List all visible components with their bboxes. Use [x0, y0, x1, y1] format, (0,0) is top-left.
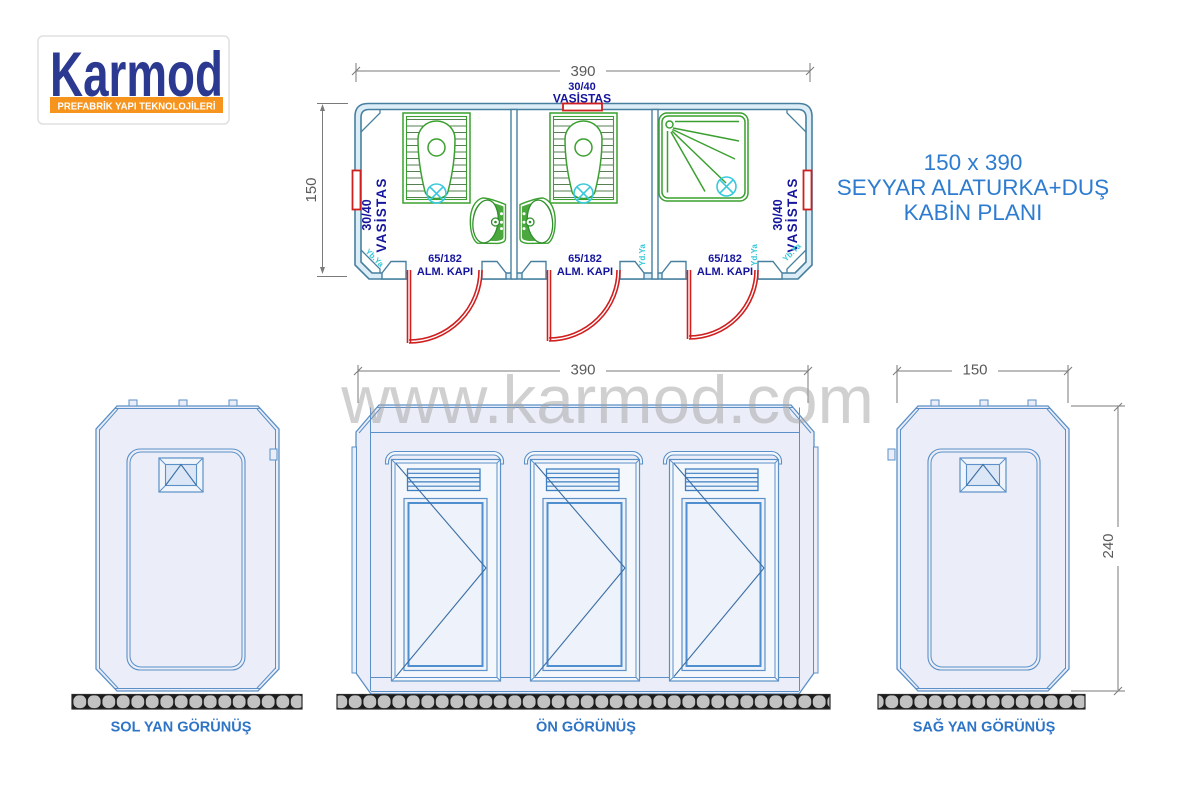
svg-text:VASİSTAS: VASİSTAS [785, 177, 800, 252]
svg-text:150: 150 [303, 177, 320, 202]
svg-text:30/40: 30/40 [771, 199, 785, 230]
svg-text:30/40: 30/40 [360, 199, 374, 230]
svg-text:390: 390 [570, 63, 595, 80]
svg-text:150: 150 [962, 362, 987, 379]
svg-text:ALM. KAPI: ALM. KAPI [417, 266, 473, 278]
svg-text:240: 240 [1100, 533, 1117, 558]
svg-text:150 x 390: 150 x 390 [924, 150, 1023, 175]
svg-text:ÖN GÖRÜNÜŞ: ÖN GÖRÜNÜŞ [536, 719, 636, 736]
svg-text:65/182: 65/182 [568, 253, 602, 265]
svg-text:www.karmod.com: www.karmod.com [340, 363, 874, 438]
svg-text:VASİSTAS: VASİSTAS [553, 91, 611, 106]
svg-text:SAĞ YAN GÖRÜNÜŞ: SAĞ YAN GÖRÜNÜŞ [913, 718, 1056, 736]
svg-text:KABİN PLANI: KABİN PLANI [904, 200, 1043, 225]
svg-text:VASİSTAS: VASİSTAS [374, 177, 389, 252]
svg-text:PREFABRİK YAPI TEKNOLOJİLERİ: PREFABRİK YAPI TEKNOLOJİLERİ [58, 100, 216, 113]
svg-text:65/182: 65/182 [428, 253, 462, 265]
svg-text:ALM. KAPI: ALM. KAPI [697, 266, 753, 278]
svg-text:SEYYAR ALATURKA+DUŞ: SEYYAR ALATURKA+DUŞ [837, 175, 1109, 200]
svg-text:Yd.Ya: Yd.Ya [638, 244, 647, 266]
svg-text:SOL YAN GÖRÜNÜŞ: SOL YAN GÖRÜNÜŞ [111, 719, 252, 736]
svg-text:Yd.Ya: Yd.Ya [750, 244, 759, 266]
svg-text:ALM. KAPI: ALM. KAPI [557, 266, 613, 278]
svg-text:65/182: 65/182 [708, 253, 742, 265]
